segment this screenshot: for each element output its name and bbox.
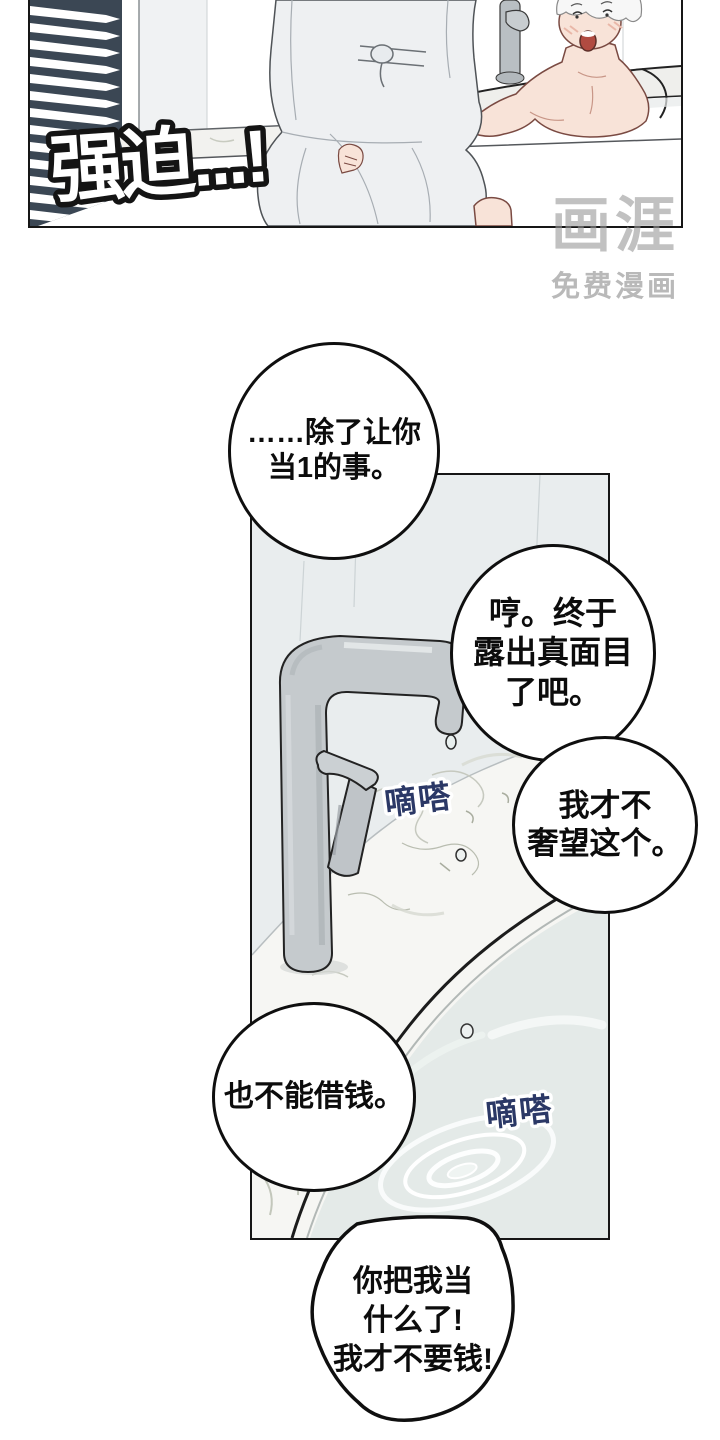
robe-belt-knot — [371, 45, 393, 63]
panel-bathtub-scene: 强迫...! — [28, 0, 683, 228]
bathrobe — [258, 0, 487, 226]
comic-page: 强迫...! 画涯 免费漫画 — [0, 0, 720, 1440]
sfx-forced-text: 强迫...! — [47, 114, 269, 212]
falling-drop — [446, 735, 456, 749]
speech-bubble-1: ……除了让你 当1的事。 — [228, 342, 440, 560]
bare-leg — [474, 198, 512, 226]
speech-bubble-2: 哼。终于 露出真面目 了吧。 — [450, 544, 656, 762]
speech-bubble-5-text: 你把我当 什么了! 我才不要钱! — [300, 1206, 526, 1434]
speech-bubble-4: 也不能借钱。 — [212, 1002, 416, 1192]
speech-bubble-5: 你把我当 什么了! 我才不要钱! — [300, 1206, 526, 1434]
sfx-drip-2: 嘀嗒 — [484, 1091, 555, 1134]
speech-bubble-3: 我才不 奢望这个。 — [512, 736, 698, 914]
watermark-tagline: 免费漫画 — [551, 263, 679, 305]
bathtub-scene-art: 强迫...! — [30, 0, 681, 226]
